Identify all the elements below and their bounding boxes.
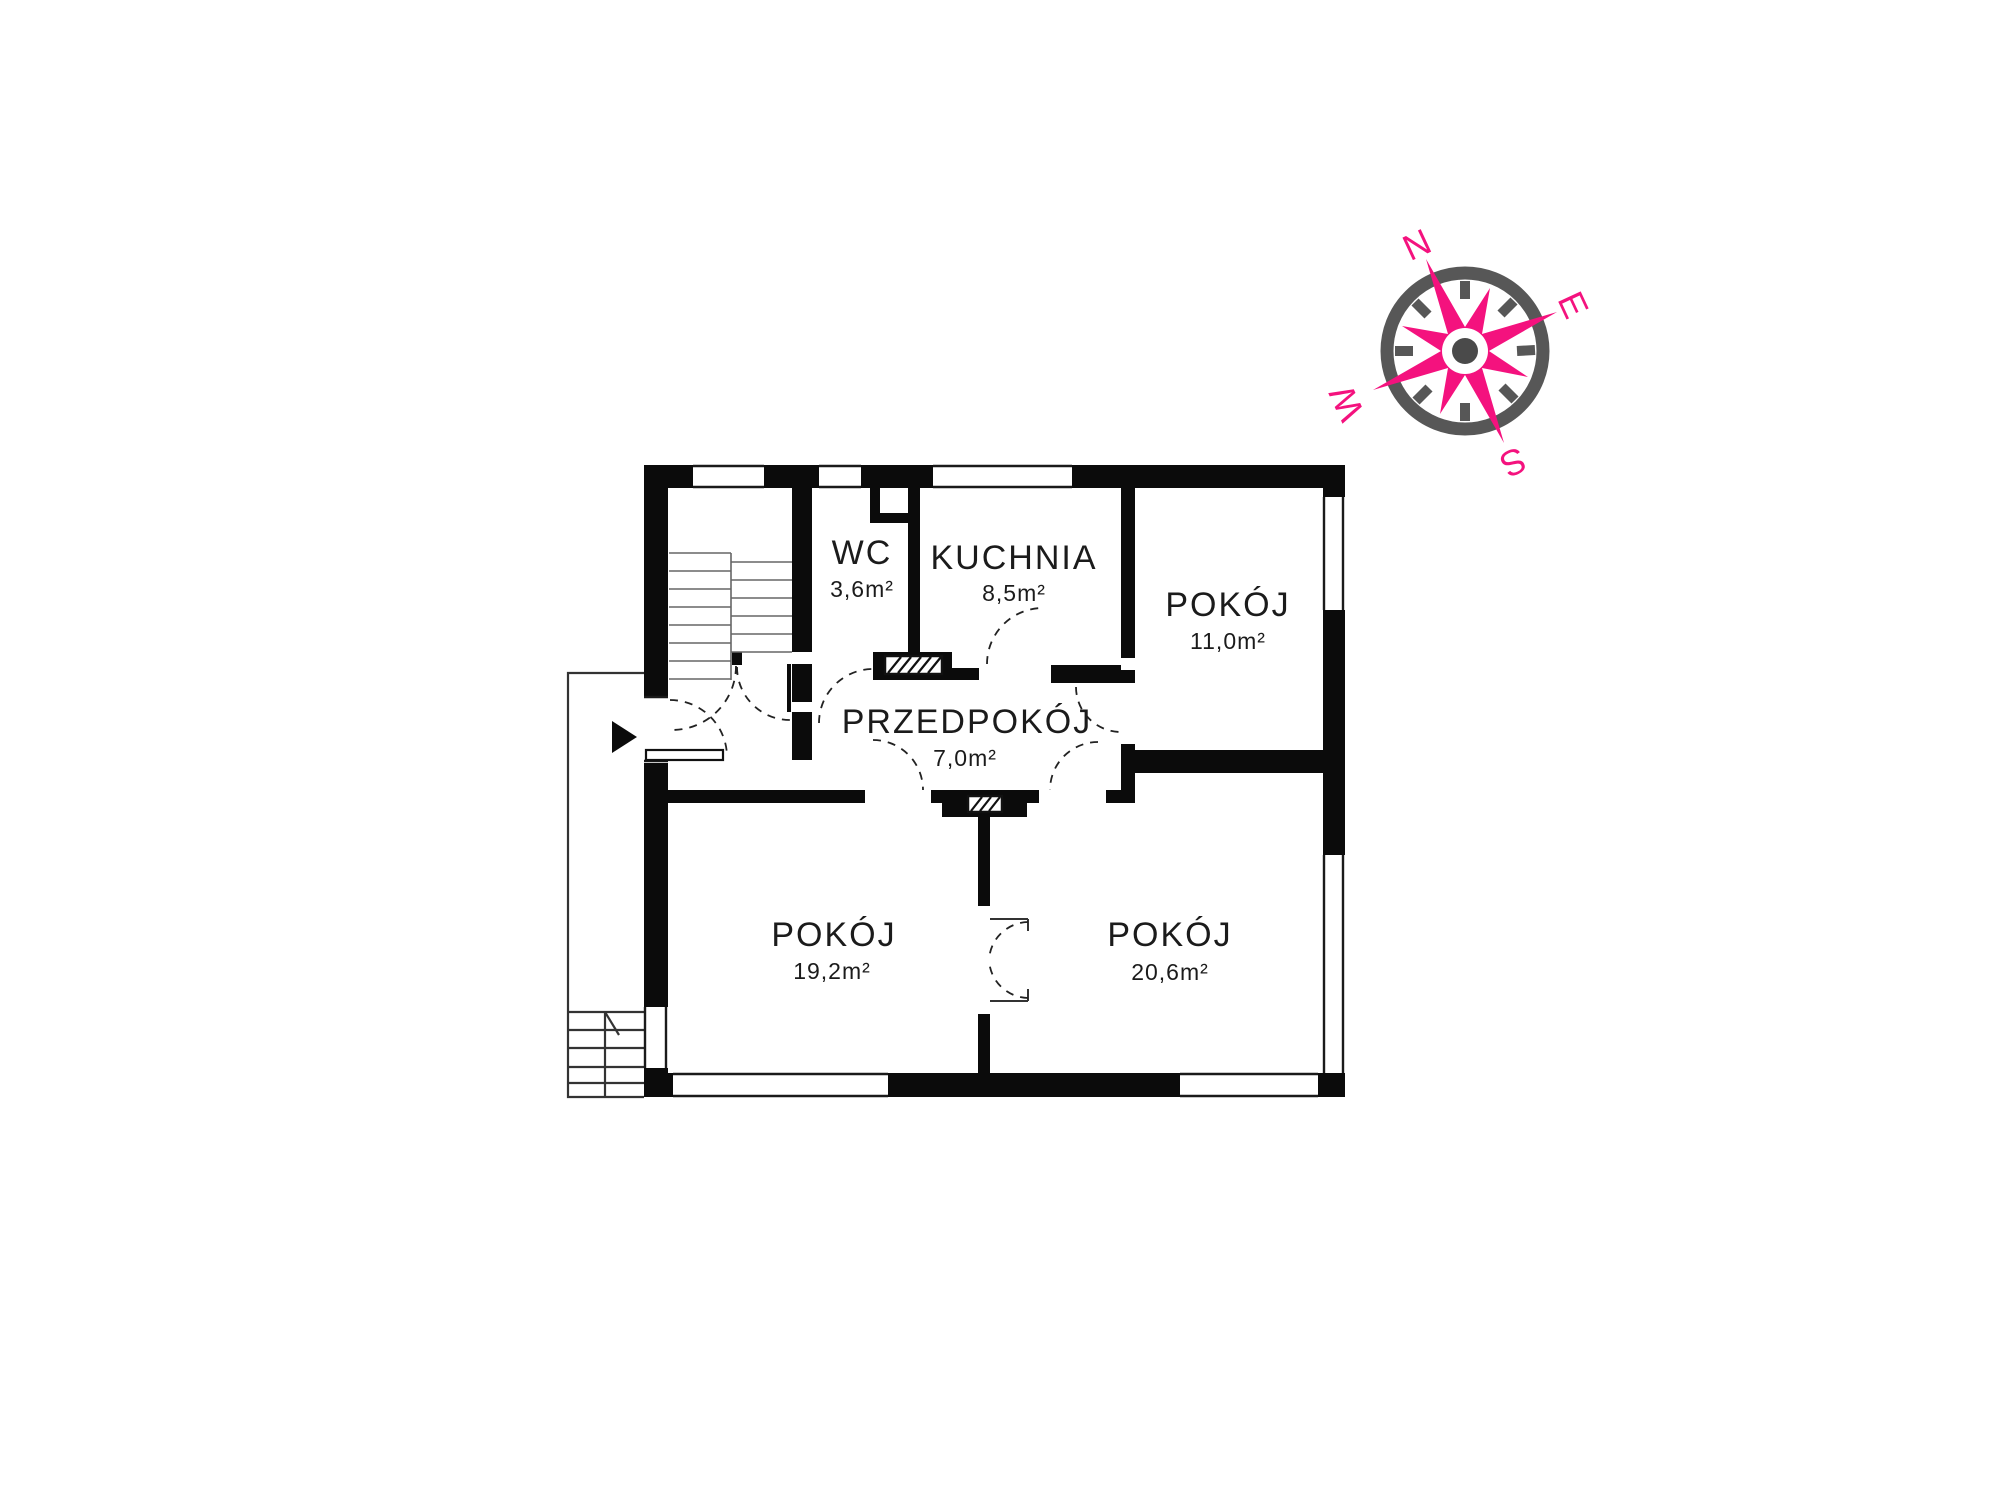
threshold-hall: [968, 796, 1002, 812]
compass-letter-w: W: [1321, 379, 1373, 427]
kuchnia-door-swing: [987, 608, 1043, 664]
compass-letter-s: S: [1494, 439, 1533, 486]
svg-text:KUCHNIA: KUCHNIA: [930, 539, 1097, 577]
window-pokoj-1: [1323, 497, 1345, 610]
stair-door-swing-right: [737, 667, 790, 720]
interior-staircase: [669, 553, 792, 680]
pokoj-2-door-swing: [873, 740, 923, 790]
compass-rose: N E S W: [1321, 220, 1597, 486]
window-pokoj-2-west: [644, 1007, 668, 1068]
window-pokoj-3-south: [1180, 1073, 1318, 1097]
entry-door: [644, 697, 727, 761]
pokoj-3-door-swing: [1050, 742, 1098, 790]
window-pokoj-3-east: [1323, 855, 1345, 1073]
svg-text:PRZEDPOKÓJ: PRZEDPOKÓJ: [842, 703, 1092, 741]
room-label-kuchnia: KUCHNIA 8,5m²: [930, 539, 1097, 606]
compass-letter-e: E: [1550, 285, 1597, 324]
svg-text:POKÓJ: POKÓJ: [771, 916, 896, 954]
svg-text:8,5m²: 8,5m²: [982, 580, 1046, 606]
threshold-kuchnia: [885, 656, 942, 674]
compass-hub-inner: [1452, 338, 1478, 364]
svg-text:3,6m²: 3,6m²: [830, 576, 894, 602]
svg-text:20,6m²: 20,6m²: [1131, 959, 1209, 985]
room-label-pokoj-3: POKÓJ 20,6m²: [1107, 916, 1232, 985]
floorplan-canvas: WC 3,6m² KUCHNIA 8,5m² POKÓJ 11,0m² PRZE…: [0, 0, 2000, 1500]
window-pokoj-2-south: [673, 1073, 888, 1097]
exterior-stairs: [568, 1012, 644, 1097]
floorplan-page: WC 3,6m² KUCHNIA 8,5m² POKÓJ 11,0m² PRZE…: [0, 0, 2000, 1500]
svg-text:WC: WC: [832, 534, 893, 572]
double-door: [989, 919, 1028, 1001]
compass-letter-n: N: [1396, 220, 1437, 268]
room-label-pokoj-1: POKÓJ 11,0m²: [1165, 586, 1290, 654]
entry-arrow-icon: [612, 721, 637, 753]
room-label-wc: WC 3,6m²: [830, 534, 894, 602]
window-kuchnia: [933, 465, 1072, 488]
window-stairwell: [693, 465, 764, 488]
svg-text:19,2m²: 19,2m²: [793, 958, 871, 984]
svg-text:7,0m²: 7,0m²: [933, 745, 997, 771]
svg-text:POKÓJ: POKÓJ: [1107, 916, 1232, 954]
room-label-pokoj-2: POKÓJ 19,2m²: [771, 916, 896, 984]
window-wc: [819, 465, 861, 488]
stair-door-swing-left: [672, 666, 736, 730]
svg-text:POKÓJ: POKÓJ: [1165, 586, 1290, 624]
room-label-przedpokoj: PRZEDPOKÓJ 7,0m²: [842, 703, 1092, 771]
svg-text:11,0m²: 11,0m²: [1190, 628, 1266, 654]
